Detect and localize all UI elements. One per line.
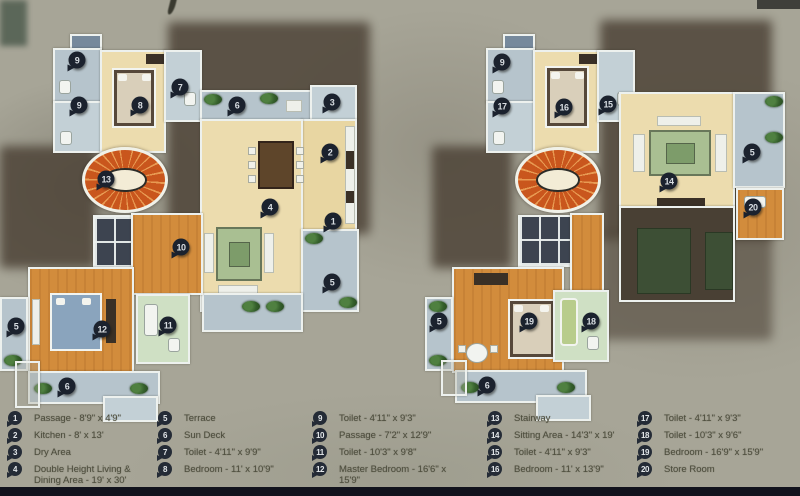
legend-entry-15: 15Toilet - 4'11" x 9'3" <box>488 445 636 459</box>
legend-entry-11: 11Toilet - 10'3" x 9'8" <box>313 445 461 459</box>
room-marker-14: 14 <box>661 173 678 190</box>
legend-column: 13Stairway14Sitting Area - 14'3" x 19'15… <box>488 411 636 479</box>
legend-pin-icon: 1 <box>8 411 22 425</box>
room-marker-4: 4 <box>262 199 279 216</box>
legend-label: Toilet - 4'11" x 9'3" <box>339 411 416 424</box>
store-room-20 <box>736 188 784 240</box>
room-marker-13: 13 <box>98 171 115 188</box>
shadow-right-plan-2 <box>432 146 512 268</box>
legend-label: Kitchen - 8' x 13' <box>34 428 104 441</box>
legend-pin-icon: 11 <box>313 445 327 459</box>
room-marker-17: 17 <box>494 98 511 115</box>
legend-label: Double Height Living & Dining Area - 19'… <box>34 462 156 486</box>
room-marker-11: 11 <box>160 317 177 334</box>
legend-entry-13: 13Stairway <box>488 411 636 425</box>
legend-entry-14: 14Sitting Area - 14'3" x 19' <box>488 428 636 442</box>
passage-10 <box>131 213 203 295</box>
terrace-5-upper <box>733 92 785 188</box>
room-marker-5: 5 <box>431 313 448 330</box>
legend-label: Dry Area <box>34 445 71 458</box>
legend-label: Passage - 8'9" x 4'9" <box>34 411 121 424</box>
double-height-void <box>619 206 735 302</box>
legend-label: Toilet - 4'11" x 9'9" <box>184 445 261 458</box>
stairway-upper <box>515 147 601 213</box>
stairway-13 <box>82 147 168 213</box>
room-marker-6: 6 <box>229 97 246 114</box>
legend-label: Passage - 7'2" x 12'9" <box>339 428 431 441</box>
passage-upper <box>570 213 604 297</box>
plant-stem-mark <box>167 0 177 15</box>
legend-pin-icon: 2 <box>8 428 22 442</box>
sun-deck-top <box>200 90 312 121</box>
room-marker-6: 6 <box>479 377 496 394</box>
legend-entry-4: 4Double Height Living & Dining Area - 19… <box>8 462 156 486</box>
room-marker-10: 10 <box>173 239 190 256</box>
legend-column: 17Toilet - 4'11" x 9'3"18Toilet - 10'3" … <box>638 411 786 479</box>
legend-label: Sitting Area - 14'3" x 19' <box>514 428 614 441</box>
legend-entry-17: 17Toilet - 4'11" x 9'3" <box>638 411 786 425</box>
legend-entry-5: 5Terrace <box>158 411 306 425</box>
room-marker-8: 8 <box>132 97 149 114</box>
legend-label: Bedroom - 11' x 13'9" <box>514 462 604 475</box>
floor-plan-image: 99876321341105512116 <box>0 0 800 496</box>
legend-pin-icon: 13 <box>488 411 502 425</box>
legend-entry-3: 3Dry Area <box>8 445 156 459</box>
bedroom-19 <box>452 267 564 373</box>
legend-entry-20: 20Store Room <box>638 462 786 476</box>
room-marker-6: 6 <box>59 378 76 395</box>
legend-pin-icon: 17 <box>638 411 652 425</box>
toilet-18 <box>553 290 609 362</box>
legend: 1Passage - 8'9" x 4'9"2Kitchen - 8' x 13… <box>0 411 800 487</box>
legend-pin-icon: 15 <box>488 445 502 459</box>
legend-entry-1: 1Passage - 8'9" x 4'9" <box>8 411 156 425</box>
legend-label: Bedroom - 11' x 10'9" <box>184 462 274 475</box>
wardrobe-grid <box>518 215 574 267</box>
legend-pin-icon: 9 <box>313 411 327 425</box>
legend-label: Sun Deck <box>184 428 225 441</box>
legend-entry-10: 10Passage - 7'2" x 12'9" <box>313 428 461 442</box>
legend-label: Bedroom - 16'9" x 15'9" <box>664 445 763 458</box>
legend-entry-12: 12Master Bedroom - 16'6" x 15'9" <box>313 462 461 486</box>
legend-label: Toilet - 4'11" x 9'3" <box>514 445 591 458</box>
terrace-strip <box>202 293 303 332</box>
legend-label: Toilet - 10'3" x 9'6" <box>664 428 741 441</box>
room-marker-12: 12 <box>94 321 111 338</box>
room-marker-18: 18 <box>583 313 600 330</box>
room-marker-1: 1 <box>325 213 342 230</box>
legend-entry-7: 7Toilet - 4'11" x 9'9" <box>158 445 306 459</box>
legend-entry-19: 19Bedroom - 16'9" x 15'9" <box>638 445 786 459</box>
room-marker-7: 7 <box>172 79 189 96</box>
room-marker-19: 19 <box>521 313 538 330</box>
room-marker-9: 9 <box>494 54 511 71</box>
legend-entry-8: 8Bedroom - 11' x 10'9" <box>158 462 306 476</box>
room-marker-5: 5 <box>324 274 341 291</box>
legend-pin-icon: 14 <box>488 428 502 442</box>
terrace-5 <box>301 229 359 312</box>
legend-label: Terrace <box>184 411 216 424</box>
legend-pin-icon: 18 <box>638 428 652 442</box>
bottom-bar <box>0 487 800 496</box>
legend-pin-icon: 10 <box>313 428 327 442</box>
legend-label: Store Room <box>664 462 715 475</box>
corner-patch <box>0 0 27 46</box>
legend-pin-icon: 5 <box>158 411 172 425</box>
room-marker-5: 5 <box>744 144 761 161</box>
legend-column: 9Toilet - 4'11" x 9'3"10Passage - 7'2" x… <box>313 411 461 489</box>
legend-label: Toilet - 10'3" x 9'8" <box>339 445 416 458</box>
legend-pin-icon: 3 <box>8 445 22 459</box>
legend-entry-9: 9Toilet - 4'11" x 9'3" <box>313 411 461 425</box>
legend-pin-icon: 8 <box>158 462 172 476</box>
legend-column: 5Terrace6Sun Deck7Toilet - 4'11" x 9'9"8… <box>158 411 306 479</box>
shadow-left-plan-2 <box>0 146 96 268</box>
legend-entry-16: 16Bedroom - 11' x 13'9" <box>488 462 636 476</box>
room-marker-9: 9 <box>71 97 88 114</box>
room-marker-15: 15 <box>600 96 617 113</box>
room-marker-16: 16 <box>556 99 573 116</box>
room-marker-5: 5 <box>8 318 25 335</box>
legend-pin-icon: 19 <box>638 445 652 459</box>
legend-pin-icon: 20 <box>638 462 652 476</box>
legend-pin-icon: 12 <box>313 462 327 476</box>
legend-entry-18: 18Toilet - 10'3" x 9'6" <box>638 428 786 442</box>
legend-pin-icon: 16 <box>488 462 502 476</box>
room-marker-2: 2 <box>322 144 339 161</box>
legend-pin-icon: 6 <box>158 428 172 442</box>
legend-column: 1Passage - 8'9" x 4'9"2Kitchen - 8' x 13… <box>8 411 156 489</box>
legend-entry-6: 6Sun Deck <box>158 428 306 442</box>
room-marker-20: 20 <box>745 199 762 216</box>
room-marker-3: 3 <box>324 94 341 111</box>
legend-label: Master Bedroom - 16'6" x 15'9" <box>339 462 461 486</box>
legend-pin-icon: 4 <box>8 462 22 476</box>
legend-label: Toilet - 4'11" x 9'3" <box>664 411 741 424</box>
room-marker-9: 9 <box>69 52 86 69</box>
master-bedroom-12 <box>28 267 134 373</box>
toilet-9 <box>486 48 535 103</box>
legend-pin-icon: 7 <box>158 445 172 459</box>
living-dining-4 <box>200 119 303 312</box>
legend-entry-2: 2Kitchen - 8' x 13' <box>8 428 156 442</box>
open-box <box>441 360 467 396</box>
corner-box <box>757 0 800 9</box>
legend-label: Stairway <box>514 411 550 424</box>
open-box <box>15 361 40 408</box>
